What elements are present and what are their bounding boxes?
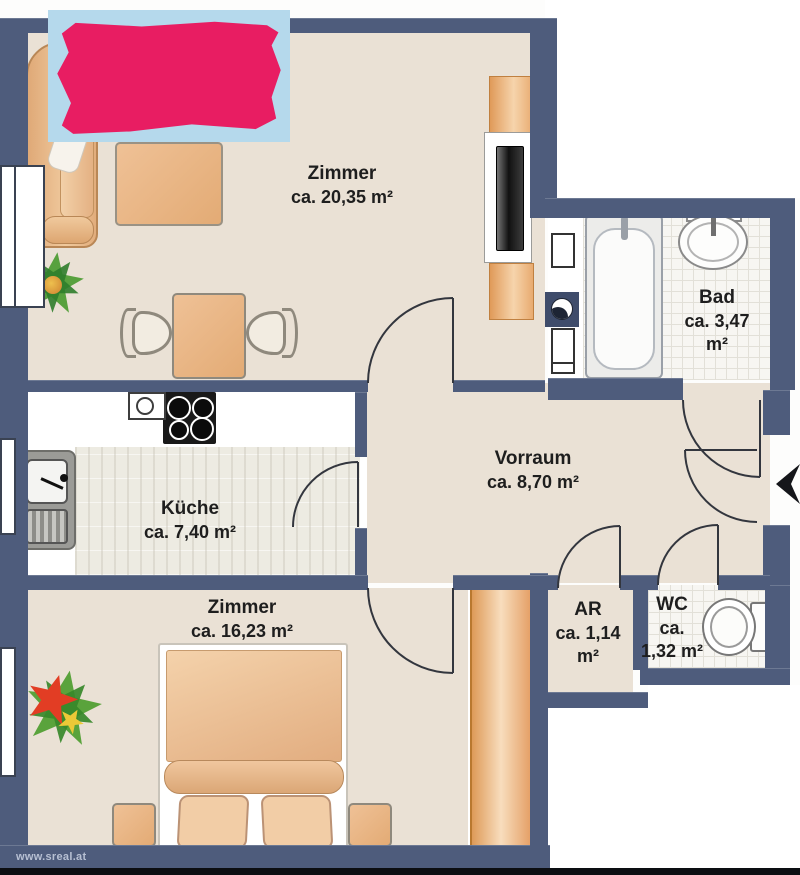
window-sill-line (14, 167, 16, 306)
room-name: Küche (144, 497, 236, 521)
burner (169, 420, 189, 440)
cabinet-divider (553, 362, 573, 364)
tv-cabinet-bottom (489, 263, 534, 320)
tv-cabinet-top (489, 76, 534, 134)
bath-cabinet-tall (551, 328, 575, 374)
room-area: ca. 16,23 m² (191, 620, 293, 643)
watermark: www.sreal.at (16, 851, 86, 863)
hall-label: Vorraum ca. 8,70 m² (487, 447, 579, 494)
wall-living-hall (453, 380, 545, 392)
kitchen-counter-fixture (128, 392, 166, 420)
pillow (261, 795, 334, 849)
bath-cabinet-small (551, 233, 575, 268)
wall-living-right (530, 18, 557, 218)
dining-chair-left (120, 306, 172, 360)
room-name: Zimmer (291, 162, 393, 186)
burner (192, 397, 214, 419)
room-area: ca. 3,47 (684, 310, 749, 333)
burner (190, 417, 214, 441)
bed-blanket-roll (164, 760, 344, 794)
sink-drainer (26, 509, 68, 544)
wall-kitchen-right-a (355, 392, 367, 457)
room-area-unit: 1,32 m² (641, 640, 703, 663)
wall-bath-bottom (548, 378, 683, 400)
wall-hall-bottom-b (453, 575, 558, 590)
bathtub-icon (585, 214, 663, 379)
wall-bedroom-right (530, 573, 548, 868)
room-name: WC (641, 593, 703, 617)
room-area: ca. (641, 617, 703, 640)
wardrobe (470, 583, 532, 853)
sofa-armrest (42, 216, 94, 244)
wc-label: WC ca. 1,32 m² (641, 593, 703, 663)
toilet-icon (700, 596, 770, 658)
room-area: ca. 20,35 m² (291, 186, 393, 209)
room-area-unit: m² (684, 333, 749, 356)
wall-right-upper (770, 198, 795, 390)
dining-chair-right (246, 306, 298, 360)
wall-hall-bottom-d (718, 575, 770, 590)
counter-sink-circle (136, 397, 154, 415)
coffee-table (115, 142, 223, 226)
redaction-scribble (55, 17, 283, 135)
bathtub-inner (593, 228, 655, 370)
chair-seat (246, 311, 286, 355)
room-name: Zimmer (191, 596, 293, 620)
washing-machine-drum (551, 307, 568, 320)
bed (158, 643, 348, 848)
bedroom-window (0, 647, 16, 777)
entrance-arrow-icon (776, 464, 800, 504)
wall-ar-bottom (540, 692, 648, 708)
bathtub-faucet (621, 216, 628, 240)
room-name: Vorraum (487, 447, 579, 471)
room-area: ca. 1,14 (555, 622, 620, 645)
bed-duvet (166, 650, 342, 762)
room-name: Bad (684, 286, 749, 310)
washing-machine-door (551, 298, 573, 320)
wall-right-entry-top (763, 390, 790, 435)
outside-top-right (545, 0, 800, 198)
bath-label: Bad ca. 3,47 m² (684, 286, 749, 356)
bottom-black-bar (0, 868, 800, 875)
bedroom-label: Zimmer ca. 16,23 m² (191, 596, 293, 643)
poinsettia-plant-icon (24, 668, 102, 750)
wall-hall-bottom-a (28, 575, 368, 590)
stove-icon (163, 392, 216, 444)
living-room-window (0, 165, 45, 308)
tv-screen-icon (496, 146, 524, 251)
outside-bottom-right (548, 708, 800, 868)
room-area: ca. 8,70 m² (487, 471, 579, 494)
dining-table (172, 293, 246, 379)
room-name: AR (555, 598, 620, 622)
burner (167, 396, 191, 420)
pillow (177, 795, 250, 849)
plant-center (44, 276, 62, 294)
sink-faucet-dot (60, 474, 68, 482)
floorplan: Zimmer ca. 20,35 m² Bad ca. 3,47 m² Vorr… (0, 0, 800, 875)
living-room-label: Zimmer ca. 20,35 m² (291, 162, 393, 209)
nightstand-right (348, 803, 392, 847)
plant-leaves-dark (16, 662, 109, 755)
chair-seat (132, 311, 172, 355)
washing-machine-icon (545, 292, 579, 327)
room-area-unit: m² (555, 645, 620, 668)
toilet-bowl-inner (710, 606, 748, 648)
wall-bath-top (545, 198, 795, 218)
nightstand-left (112, 803, 156, 847)
storage-label: AR ca. 1,14 m² (555, 598, 620, 668)
outside-below-wc (648, 685, 800, 708)
wall-hall-bottom-c (620, 575, 658, 590)
kitchen-label: Küche ca. 7,40 m² (144, 497, 236, 544)
room-area: ca. 7,40 m² (144, 521, 236, 544)
wall-wc-bottom (640, 668, 790, 685)
wall-living-kitchen (28, 380, 368, 392)
kitchen-window (0, 438, 16, 535)
